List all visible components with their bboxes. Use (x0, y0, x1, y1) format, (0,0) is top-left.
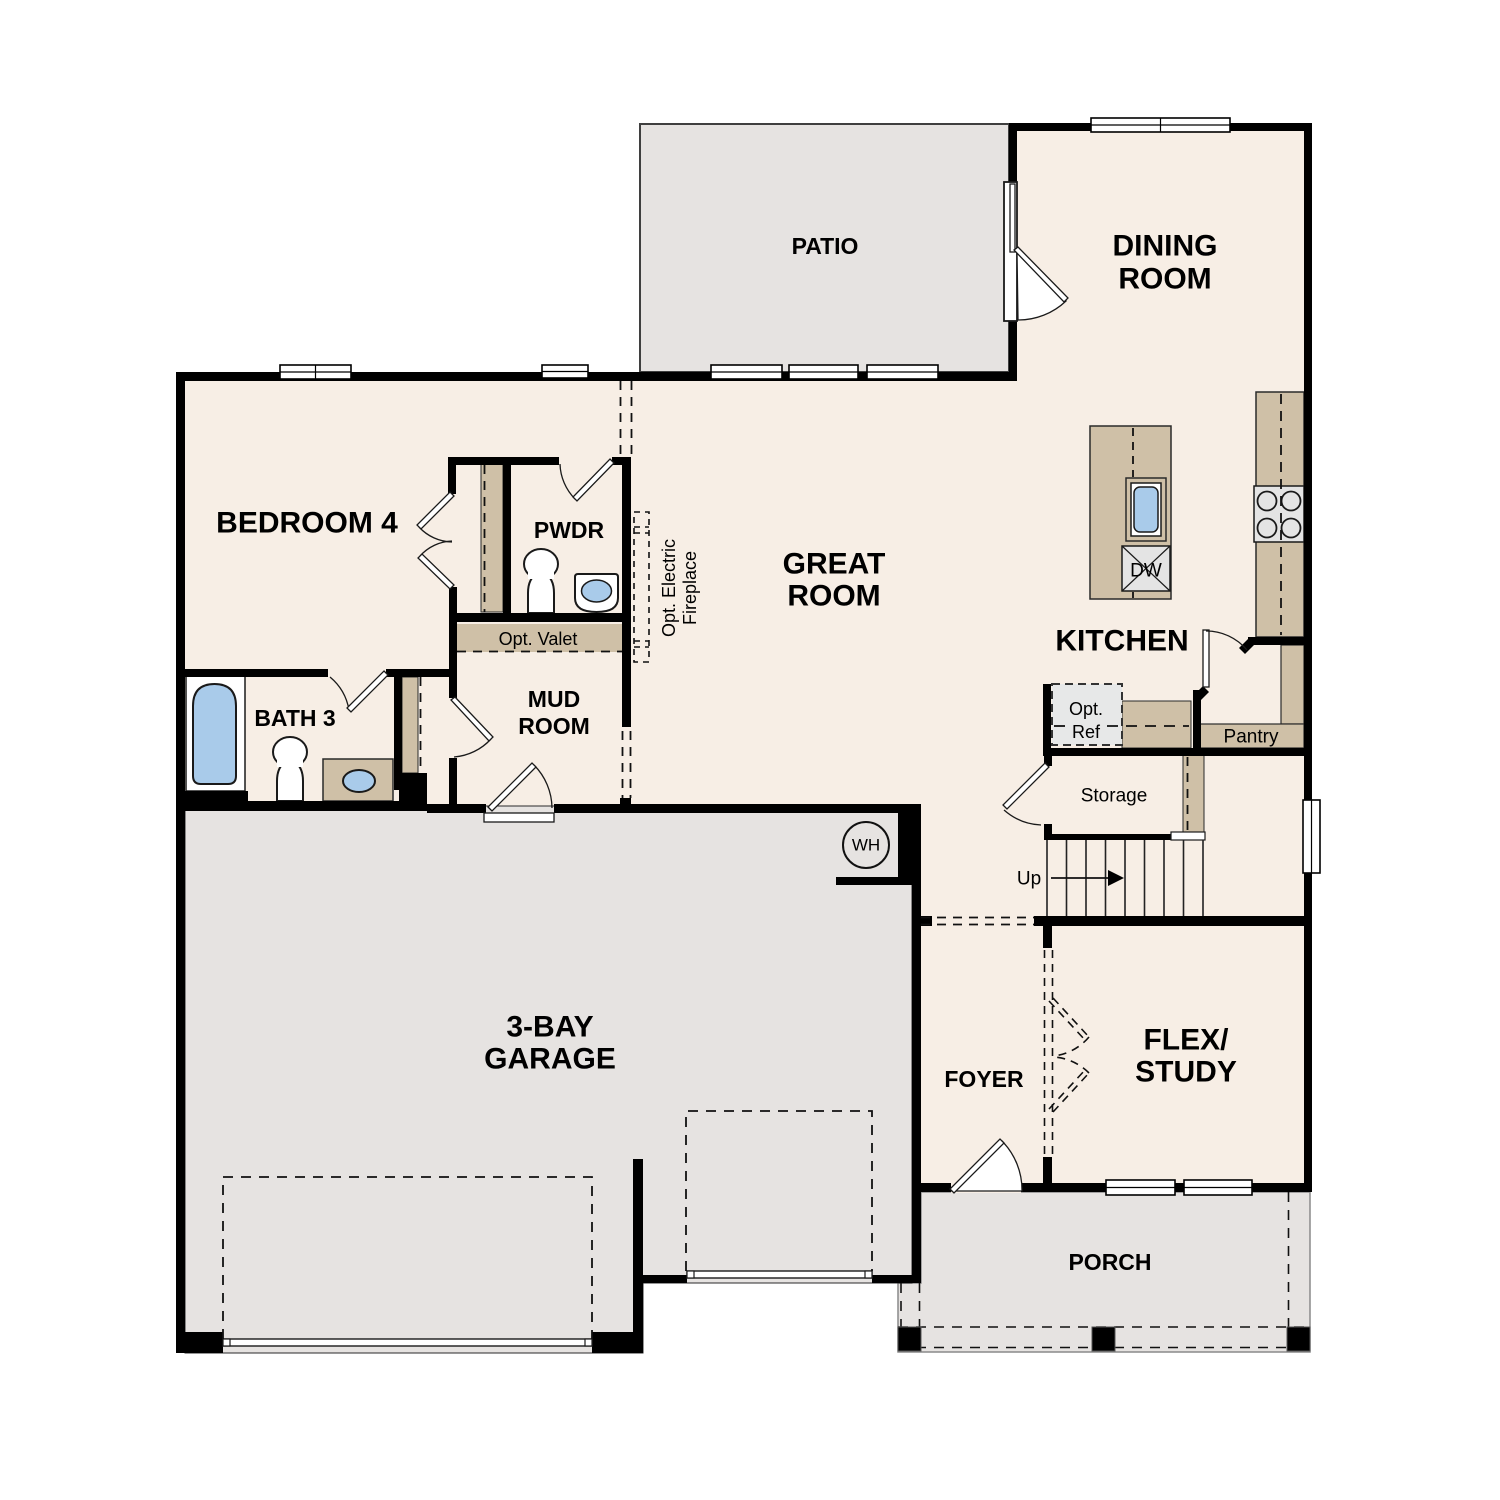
svg-text:DINING: DINING (1113, 230, 1218, 263)
svg-text:MUD: MUD (528, 686, 580, 712)
svg-text:ROOM: ROOM (787, 580, 880, 613)
svg-text:BEDROOM 4: BEDROOM 4 (216, 507, 398, 540)
svg-text:WH: WH (852, 836, 880, 855)
svg-text:Opt.: Opt. (1069, 699, 1103, 719)
svg-text:GARAGE: GARAGE (484, 1043, 616, 1076)
svg-text:Up: Up (1017, 869, 1041, 890)
svg-text:Fireplace: Fireplace (680, 551, 700, 625)
svg-text:KITCHEN: KITCHEN (1055, 625, 1188, 658)
svg-text:PORCH: PORCH (1068, 1249, 1151, 1275)
svg-text:Ref: Ref (1072, 722, 1101, 742)
svg-text:Storage: Storage (1081, 786, 1148, 807)
svg-text:Opt. Electric: Opt. Electric (659, 539, 679, 637)
svg-text:PWDR: PWDR (534, 517, 605, 543)
svg-text:DW: DW (1130, 561, 1162, 582)
svg-text:Opt. Valet: Opt. Valet (499, 629, 578, 649)
svg-text:FOYER: FOYER (944, 1066, 1024, 1092)
svg-text:STUDY: STUDY (1135, 1056, 1237, 1089)
svg-text:PATIO: PATIO (792, 233, 859, 259)
svg-text:Pantry: Pantry (1224, 727, 1279, 748)
svg-text:3-BAY: 3-BAY (506, 1011, 593, 1044)
svg-text:ROOM: ROOM (518, 713, 590, 739)
svg-text:ROOM: ROOM (1118, 263, 1211, 296)
svg-text:BATH 3: BATH 3 (254, 705, 335, 731)
svg-text:FLEX/: FLEX/ (1143, 1024, 1229, 1057)
svg-text:GREAT: GREAT (783, 548, 886, 581)
